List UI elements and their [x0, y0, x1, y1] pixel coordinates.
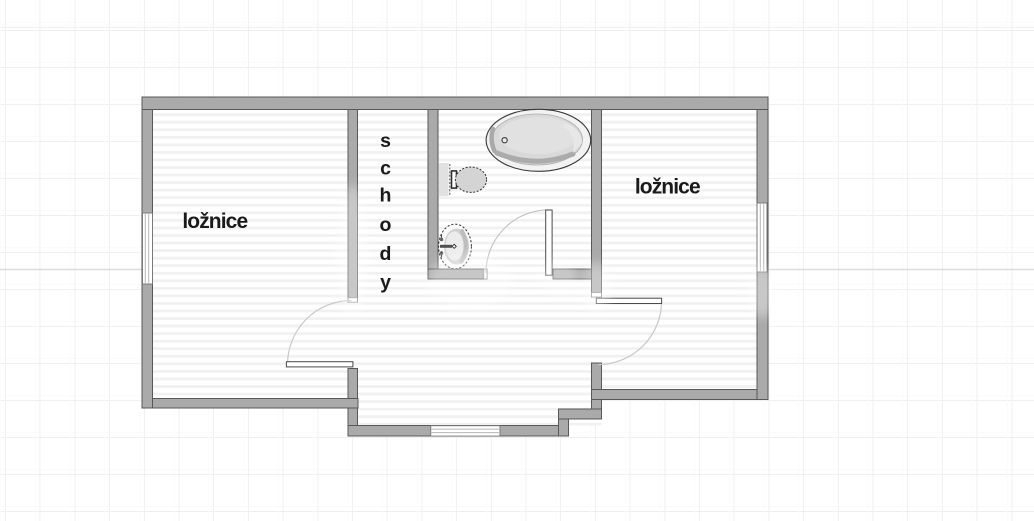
- svg-text:o: o: [380, 214, 392, 236]
- svg-text:ložnice: ložnice: [182, 210, 247, 233]
- svg-text:c: c: [380, 157, 391, 179]
- svg-text:y: y: [380, 271, 391, 293]
- svg-text:ložnice: ložnice: [635, 176, 700, 199]
- svg-text:d: d: [380, 243, 392, 265]
- svg-text:s: s: [380, 130, 391, 152]
- svg-text:h: h: [380, 185, 392, 207]
